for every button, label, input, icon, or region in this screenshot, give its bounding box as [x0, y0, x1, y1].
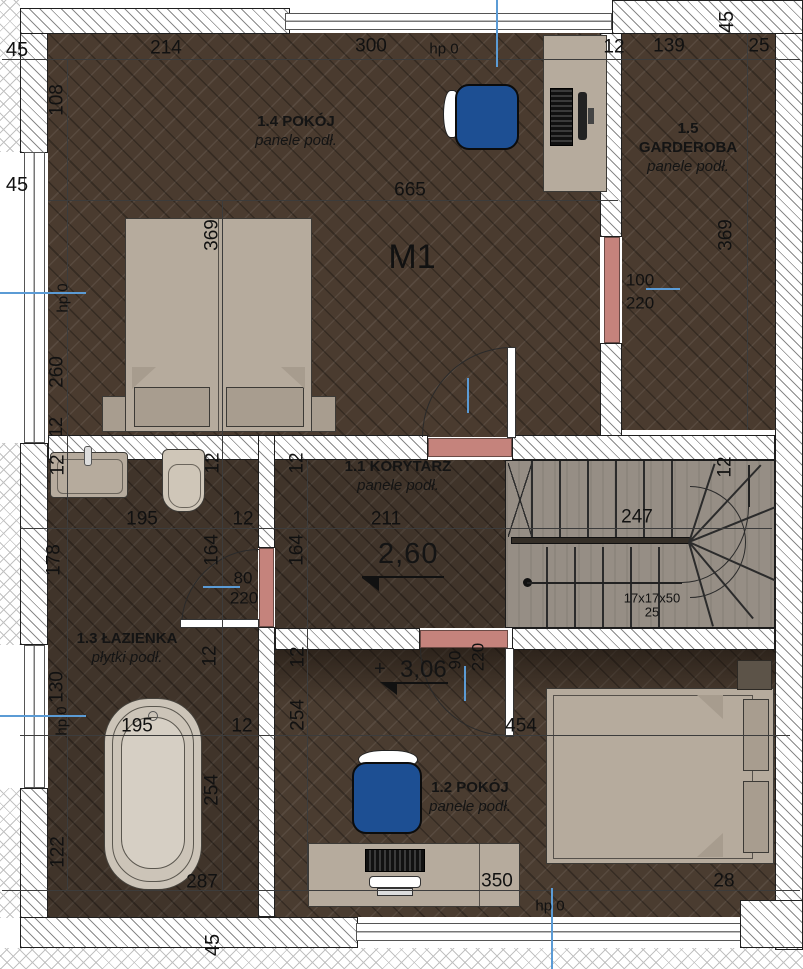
dimension-label: 108 [48, 84, 67, 116]
dimension-label: hp 0 [535, 899, 564, 914]
dimension-label: 164 [203, 534, 222, 566]
dimension-label: 12 [201, 645, 220, 666]
dimension-label: 45 [203, 934, 223, 956]
dimension-label: 12 [232, 510, 253, 529]
dimension-label: 300 [355, 37, 387, 56]
dimension-label: 211 [371, 510, 401, 529]
dimension-label: 90 [447, 651, 464, 670]
dimension-label: 164 [288, 534, 307, 566]
dimension-label: 454 [505, 717, 537, 736]
dimension-label: 12 [716, 456, 735, 477]
dimension-label: 220 [470, 643, 487, 671]
dimension-label: 25 [748, 37, 769, 56]
dimension-label: 100 [626, 272, 654, 289]
dimension-label: 254 [203, 774, 222, 806]
dimension-label: hp 0 [429, 42, 458, 57]
dimension-label: 12 [603, 38, 624, 57]
dimension-label: 665 [394, 181, 426, 200]
dimension-label: 369 [203, 219, 222, 251]
dimension-label: 12 [204, 452, 223, 473]
dimension-label: 195 [121, 717, 153, 736]
dimension-label: 195 [126, 510, 158, 529]
dimension-label: 260 [48, 356, 67, 388]
dimension-label: 12 [231, 717, 252, 736]
dimensions-layer: 45214300hp 012139254510845hp 02601266536… [0, 0, 803, 969]
dimension-label: 45 [717, 11, 737, 33]
dimension-label: 178 [45, 544, 64, 576]
dimension-label: 17x17x50 [624, 592, 680, 605]
dimension-label: 287 [186, 873, 218, 892]
dimension-label: 45 [6, 175, 28, 195]
dimension-label: 130 [48, 671, 67, 703]
dimension-label: 220 [230, 590, 258, 607]
dimension-label: hp 0 [56, 283, 71, 312]
dimension-label: 254 [289, 699, 308, 731]
dimension-label: 28 [713, 872, 734, 891]
dimension-label: 139 [653, 37, 685, 56]
dimension-label: 350 [481, 872, 513, 891]
dimension-label: 122 [49, 836, 68, 868]
dimension-label: 12 [47, 417, 65, 437]
floor-plan: M1 2,60 + 3,06 1.4 POKÓJpanele podł.1.5 … [0, 0, 803, 969]
dimension-label: 12 [49, 454, 68, 475]
dimension-label: 45 [6, 40, 28, 60]
dimension-label: 12 [288, 452, 307, 473]
dimension-label: 25 [645, 606, 659, 619]
dimension-label: 220 [626, 295, 654, 312]
dimension-label: 12 [289, 646, 308, 667]
dimension-label: 247 [621, 508, 653, 527]
dimension-label: 369 [717, 219, 736, 251]
dimension-label: hp 0 [55, 706, 70, 735]
dimension-label: 80 [234, 570, 253, 587]
dimension-label: 214 [150, 39, 182, 58]
